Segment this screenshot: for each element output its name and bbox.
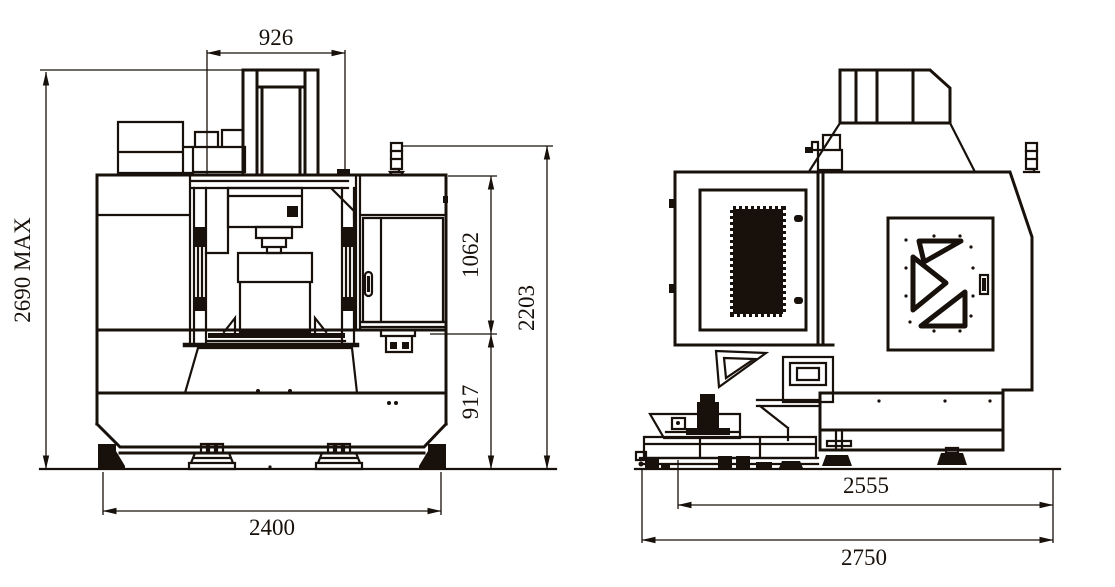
side-door-knob-bottom xyxy=(794,297,803,304)
side-rib-bracket xyxy=(716,351,766,387)
dim-2203: 2203 xyxy=(402,146,553,469)
conveyor-cart-body xyxy=(644,437,816,458)
dim-917: 917 xyxy=(458,334,491,469)
side-front-door xyxy=(888,218,993,350)
front-right-edge-stud xyxy=(443,196,448,203)
lamp-segment-lines xyxy=(391,151,402,159)
dim-2555: 2555 xyxy=(678,460,1053,509)
side-vent-grille xyxy=(733,209,783,314)
dim-2690-label: 2690 MAX xyxy=(10,217,35,323)
front-table xyxy=(238,253,312,332)
front-enclosure xyxy=(97,175,446,453)
lamp-segments xyxy=(391,143,402,169)
front-right-handle-top xyxy=(341,227,355,247)
dim-926: 926 xyxy=(207,25,345,175)
dim-2750-label: 2750 xyxy=(841,545,887,570)
side-left-hinge-bottom xyxy=(669,284,675,293)
dim-2555-label: 2555 xyxy=(843,473,889,498)
front-right-door xyxy=(363,218,443,322)
side-view: 2555 2750 xyxy=(635,70,1060,570)
side-head-motor xyxy=(812,135,842,170)
conveyor-motor-body xyxy=(697,402,719,430)
dim-926-label: 926 xyxy=(259,25,294,50)
side-lamp-lines xyxy=(1026,151,1037,159)
side-lamp-segments xyxy=(1026,143,1037,169)
side-window-triangle-left xyxy=(913,257,946,310)
side-door-handle-grip xyxy=(982,278,986,291)
front-pendant-key-right xyxy=(402,342,409,349)
dim-2690-max: 2690 MAX xyxy=(10,70,243,469)
front-left-handle-bottom xyxy=(193,297,207,311)
front-door-track-right xyxy=(342,188,354,345)
side-window-triangle-top xyxy=(919,241,961,262)
front-left-handle-top xyxy=(193,227,207,247)
front-roof-cabinet xyxy=(118,122,245,173)
dim-917-label: 917 xyxy=(458,385,483,420)
front-door-track-left xyxy=(194,188,206,345)
conveyor-motor-base xyxy=(686,428,730,435)
side-dimensions: 2555 2750 xyxy=(642,460,1053,570)
side-jack-screw xyxy=(827,430,851,450)
conveyor-junction-dot xyxy=(676,421,680,425)
outline-drawing: 926 2690 MAX 1062 917 2203 xyxy=(0,0,1115,587)
side-base-dots xyxy=(877,399,991,402)
side-head-shoulder xyxy=(810,123,974,170)
front-chip-pan xyxy=(185,348,357,393)
front-roof-bolt xyxy=(337,169,350,175)
front-right-handle-bottom xyxy=(341,297,355,311)
front-spindle-nose xyxy=(256,227,292,253)
side-axis-unit xyxy=(757,357,833,440)
front-enclosure-details xyxy=(97,175,446,345)
side-signal-lamp xyxy=(1024,143,1039,172)
front-base-dots xyxy=(256,389,398,469)
conveyor-motor-cap xyxy=(700,394,715,402)
front-pendant-key-left xyxy=(390,342,397,349)
drawing-canvas: 926 2690 MAX 1062 917 2203 xyxy=(0,0,1115,587)
front-signal-lamp xyxy=(390,143,403,175)
dim-2203-label: 2203 xyxy=(514,285,539,331)
side-pad-2 xyxy=(822,455,852,466)
dim-2400-extensions xyxy=(103,472,441,515)
front-way-cover-band xyxy=(208,333,345,338)
side-head xyxy=(840,70,950,123)
front-column xyxy=(243,70,318,175)
dim-1062: 1062 xyxy=(430,176,497,334)
dim-1062-label: 1062 xyxy=(458,232,483,278)
front-spindle-detail xyxy=(287,206,298,217)
side-head-connector xyxy=(805,147,813,153)
front-view: 926 2690 MAX 1062 917 2203 xyxy=(10,25,556,540)
front-door-handle-grip xyxy=(367,276,370,292)
side-pad-3 xyxy=(937,453,967,465)
side-door-knob-top xyxy=(794,215,803,222)
front-pendant-bracket xyxy=(381,330,415,352)
dim-2400-label: 2400 xyxy=(249,515,295,540)
side-left-hinge-top xyxy=(669,199,675,208)
dim-2400: 2400 xyxy=(103,472,441,540)
